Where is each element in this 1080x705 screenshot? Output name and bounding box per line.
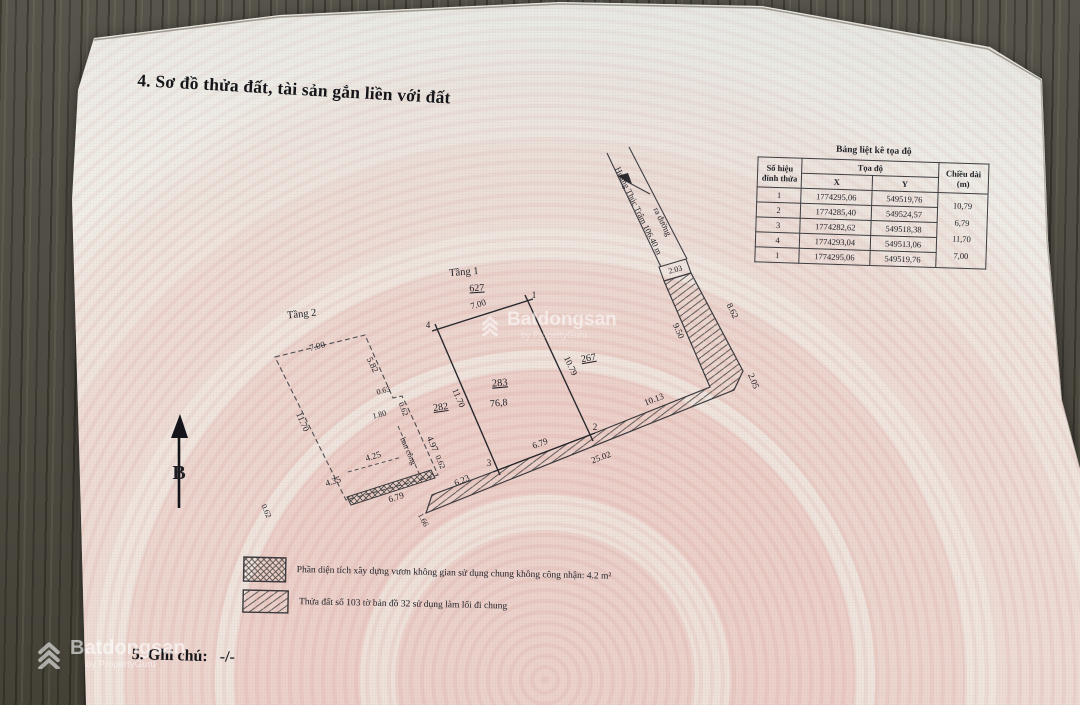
dim-f2-step3: 1.80 [371,408,387,420]
dim-f2-step1: 0.63 [375,384,391,396]
dim-plot-left: 11.70 [450,387,467,410]
legend-item-path-text: Thửa đất số 103 tờ bản đồ 32 sử dụng làm… [299,597,507,611]
dim-f2-top: 7.00 [308,339,326,353]
vertex-1-label: 1 [532,290,537,300]
floor2-label: Tầng 2 [287,308,317,322]
vertex-4-label: 4 [426,320,431,330]
parcel-area: 76,8 [490,397,508,409]
road [607,147,687,267]
dim-f2-inner: 4.25 [364,449,383,464]
dim-plot-bottom: 6.79 [531,436,550,451]
dim-overhang-cap-left: 0.62 [259,503,273,519]
dim-path-seg1: 10.13 [643,391,666,408]
dim-overhang: 4.35 [324,474,343,489]
dim-f2-right2: 4.97 [425,435,441,454]
neighbor-parcel-top: 627 [469,282,485,294]
document-paper: 4. Sơ đồ thửa đất, tài sản gắn liền với … [0,0,1080,705]
crosshatch-swatch-icon [242,556,287,583]
vertex-2-label: 2 [593,422,598,432]
dim-plot-right: 10.79 [562,354,580,377]
north-arrow: B [171,414,188,508]
floor1-label: Tầng 1 [449,266,479,279]
diagonal-hatch-swatch-icon [242,589,289,614]
dim-path-right: 8.62 [725,301,741,320]
legend-item-path: Thửa đất số 103 tờ bản đồ 32 sử dụng làm… [242,589,611,621]
dim-f2-step2: 0.62 [397,401,411,417]
dim-path-end: 2.05 [746,372,761,391]
dim-path-length: 25.02 [590,449,612,465]
paper-shadow: 4. Sơ đồ thửa đất, tài sản gắn liền với … [0,0,1080,705]
dim-f2-right1: 5.82 [365,355,381,374]
legend-item-overhang-text: Phần diện tích xây dựng vươn không gian … [297,565,612,582]
paper-top-edge [94,4,1041,80]
neighbor-parcel-left: 282 [432,401,448,414]
dim-path-cap: 1.66 [416,512,431,529]
notes-label: 5. Ghi chú: [132,646,208,665]
dim-path-neck: 2.03 [667,263,683,275]
neighbor-parcel-right: 267 [580,352,597,365]
balcony-label: ban công [398,436,418,466]
dim-f2-left: 11.70 [294,411,311,434]
vertex-3-label: 3 [487,458,492,468]
parcel-number: 283 [491,377,508,389]
legend: Phần diện tích xây dựng vươn không gian … [242,556,612,628]
notes-section: 5. Ghi chú:-/- [131,646,235,667]
notes-value: -/- [220,648,236,665]
north-label: B [172,462,185,484]
dim-plot-top: 7.00 [469,297,487,311]
paper-right-edge [1041,80,1080,468]
dim-overhang-cap-right: 0.62 [433,454,447,470]
